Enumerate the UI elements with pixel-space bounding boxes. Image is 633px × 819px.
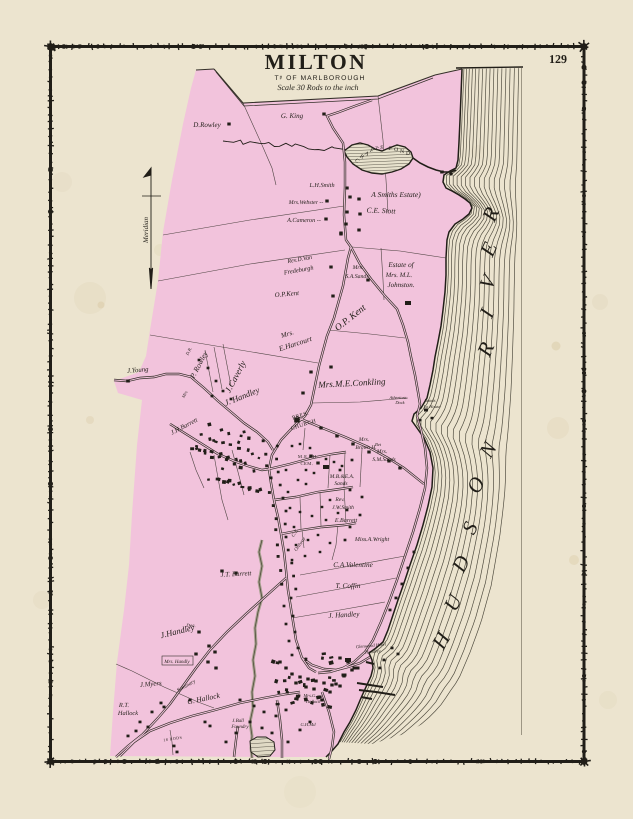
svg-text:Mrs.G.: Mrs.G. — [302, 693, 316, 698]
svg-text:Johnston.: Johnston. — [387, 281, 414, 289]
svg-text:Hallock: Hallock — [117, 710, 138, 717]
svg-text:S.A.Sands: S.A.Sands — [345, 273, 369, 280]
svg-text:Rev.: Rev. — [334, 497, 344, 503]
svg-text:S.M.Sands: S.M.Sands — [372, 457, 395, 463]
svg-text:Lo House: Lo House — [423, 404, 441, 409]
svg-text:Mrs. M.L.: Mrs. M.L. — [385, 272, 413, 279]
svg-text:G. King: G. King — [281, 112, 304, 120]
svg-text:G.H.Md: G.H.Md — [300, 722, 316, 727]
svg-text:MILTON: MILTON — [265, 50, 368, 74]
svg-text:M.E.CH.: M.E.CH. — [298, 454, 318, 459]
svg-text:M.B.&E.A.: M.B.&E.A. — [329, 474, 354, 480]
svg-text:CEM.: CEM. — [300, 461, 313, 466]
svg-text:Sands: Sands — [425, 398, 436, 403]
svg-text:Sands: Sands — [334, 481, 347, 487]
svg-text:C.E. Stott: C.E. Stott — [366, 205, 396, 215]
svg-text:Miss.A.Wright: Miss.A.Wright — [354, 536, 390, 543]
svg-text:129: 129 — [549, 52, 567, 66]
svg-text:Hallock: Hallock — [305, 699, 322, 704]
svg-text:C.A.Valentine: C.A.Valentine — [333, 561, 373, 569]
svg-text:D: D — [406, 151, 410, 157]
svg-text:Mrs.: Mrs. — [352, 265, 364, 271]
svg-text:R.T.: R.T. — [118, 702, 130, 709]
svg-text:Mrs. Handly: Mrs. Handly — [163, 659, 190, 665]
svg-text:Estate of: Estate of — [387, 261, 414, 269]
svg-text:Dock: Dock — [394, 400, 405, 405]
svg-text:Foundry: Foundry — [230, 724, 249, 730]
svg-text:J.Ball: J.Ball — [232, 718, 244, 724]
svg-text:Mrs.: Mrs. — [358, 437, 369, 443]
svg-text:E.Barrett: E.Barrett — [334, 518, 358, 524]
svg-text:Mrs.: Mrs. — [376, 449, 387, 455]
svg-text:D.Rowley: D.Rowley — [192, 121, 221, 129]
svg-text:T. Coffin: T. Coffin — [335, 582, 360, 590]
svg-text:J.W.Smith: J.W.Smith — [332, 505, 354, 511]
svg-text:L.H.Smith: L.H.Smith — [308, 182, 334, 189]
svg-text:O: O — [394, 147, 398, 153]
svg-text:Scale 30 Rods to the inch: Scale 30 Rods to the inch — [277, 83, 358, 92]
svg-text:Bet: Bet — [375, 442, 382, 447]
svg-text:Brown H.: Brown H. — [355, 445, 376, 451]
svg-text:Mrs.Webster --: Mrs.Webster -- — [288, 199, 324, 206]
svg-text:N: N — [400, 149, 404, 155]
svg-text:Meridian: Meridian — [142, 216, 150, 244]
svg-text:J. Handley: J. Handley — [328, 610, 360, 620]
svg-text:A Smiths Estate): A Smiths Estate) — [370, 190, 421, 199]
svg-text:Tᵖ OF MARLBOROUGH: Tᵖ OF MARLBOROUGH — [275, 75, 366, 82]
svg-text:A.Cameron --: A.Cameron -- — [286, 217, 321, 224]
